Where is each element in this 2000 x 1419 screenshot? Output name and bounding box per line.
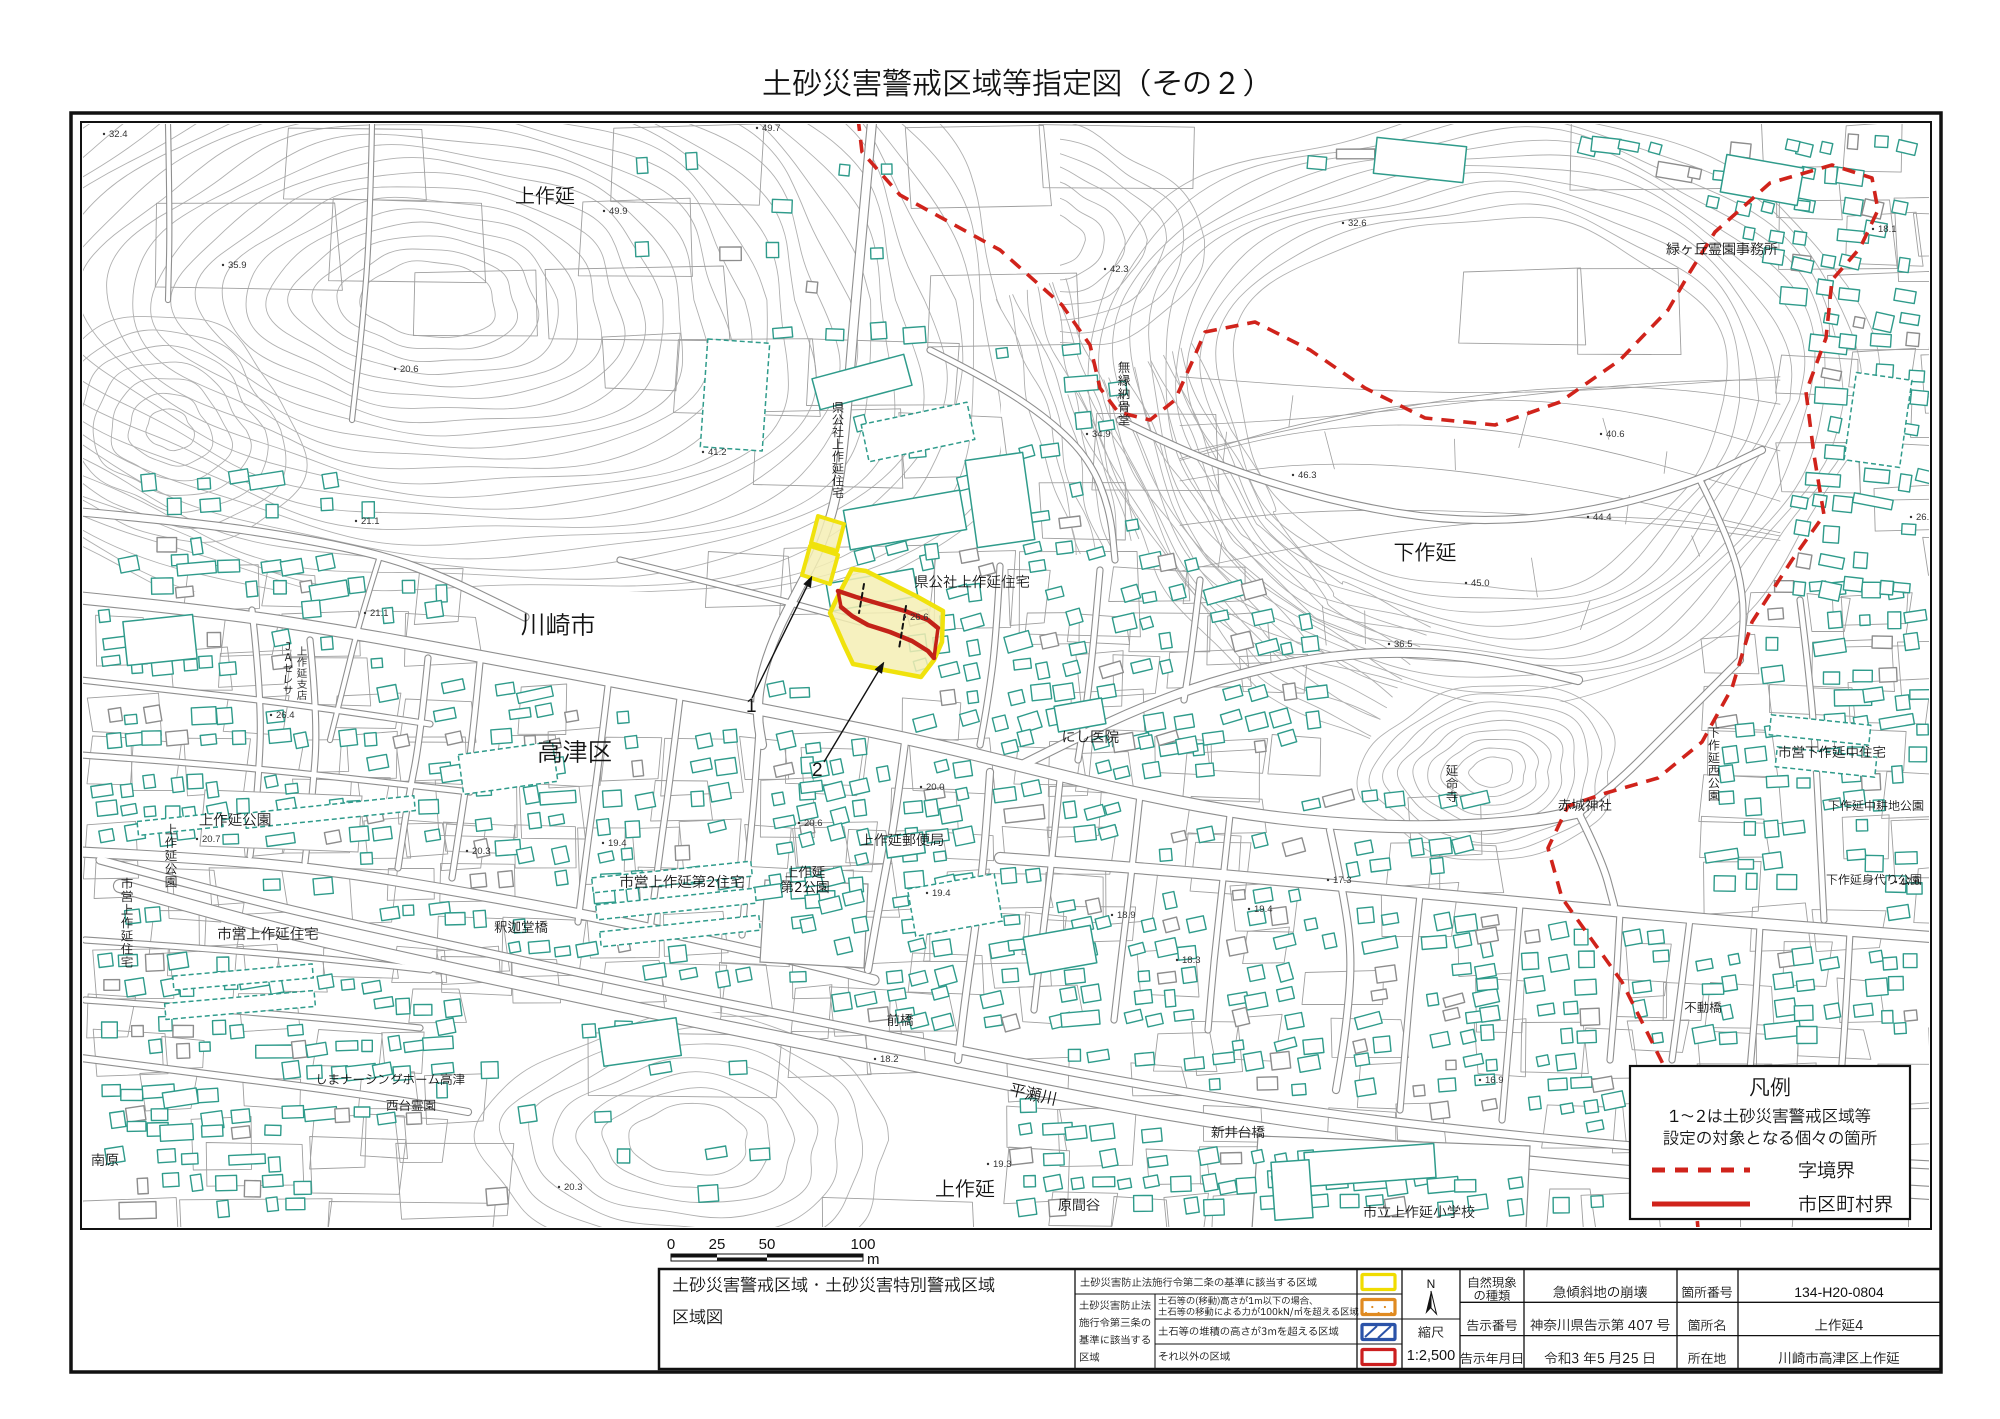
- svg-text:21.1: 21.1: [370, 608, 389, 619]
- svg-text:32.6: 32.6: [1348, 218, 1367, 229]
- svg-text:26.6: 26.6: [910, 612, 929, 623]
- svg-text:20.3: 20.3: [472, 846, 491, 857]
- svg-text:20.0: 20.0: [926, 782, 945, 793]
- svg-text:40.6: 40.6: [1606, 429, 1625, 440]
- svg-text:49.7: 49.7: [762, 123, 781, 134]
- svg-text:20.6: 20.6: [400, 364, 419, 375]
- svg-text:21.1: 21.1: [361, 516, 380, 527]
- svg-text:45.0: 45.0: [1471, 578, 1490, 589]
- svg-text:20.7: 20.7: [202, 834, 221, 845]
- svg-text:0: 0: [667, 1236, 675, 1253]
- svg-text:m: m: [867, 1251, 880, 1268]
- svg-text:18.1: 18.1: [1878, 224, 1897, 235]
- svg-text:36.5: 36.5: [1394, 639, 1413, 650]
- svg-text:26.4: 26.4: [276, 710, 295, 721]
- svg-text:25: 25: [709, 1236, 726, 1253]
- svg-text:32.4: 32.4: [109, 129, 128, 140]
- svg-text:N: N: [1427, 1277, 1436, 1291]
- svg-text:35.9: 35.9: [228, 260, 247, 271]
- svg-text:50: 50: [759, 1236, 776, 1253]
- svg-text:41.2: 41.2: [708, 447, 727, 458]
- svg-text:18.2: 18.2: [880, 1054, 899, 1065]
- svg-text:42.3: 42.3: [1110, 264, 1129, 275]
- svg-text:19.3: 19.3: [993, 1159, 1012, 1170]
- svg-text:134-H20-0804: 134-H20-0804: [1794, 1284, 1884, 1300]
- svg-text:19.4: 19.4: [1254, 904, 1273, 915]
- svg-text:1: 1: [746, 696, 757, 717]
- svg-text:19.4: 19.4: [932, 888, 951, 899]
- svg-text:2: 2: [812, 760, 823, 781]
- svg-text:1:2,500: 1:2,500: [1407, 1348, 1455, 1364]
- svg-text:16.9: 16.9: [1485, 1075, 1504, 1086]
- svg-text:44.4: 44.4: [1593, 512, 1612, 523]
- svg-text:20.3: 20.3: [564, 1182, 583, 1193]
- svg-text:18.9: 18.9: [1117, 910, 1136, 921]
- svg-text:46.3: 46.3: [1298, 470, 1317, 481]
- svg-text:18.3: 18.3: [1182, 955, 1201, 966]
- svg-text:20.6: 20.6: [804, 818, 823, 829]
- svg-text:19.4: 19.4: [608, 838, 627, 849]
- svg-text:49.9: 49.9: [609, 206, 628, 217]
- svg-text:17.3: 17.3: [1333, 875, 1352, 886]
- svg-text:34.9: 34.9: [1092, 429, 1111, 440]
